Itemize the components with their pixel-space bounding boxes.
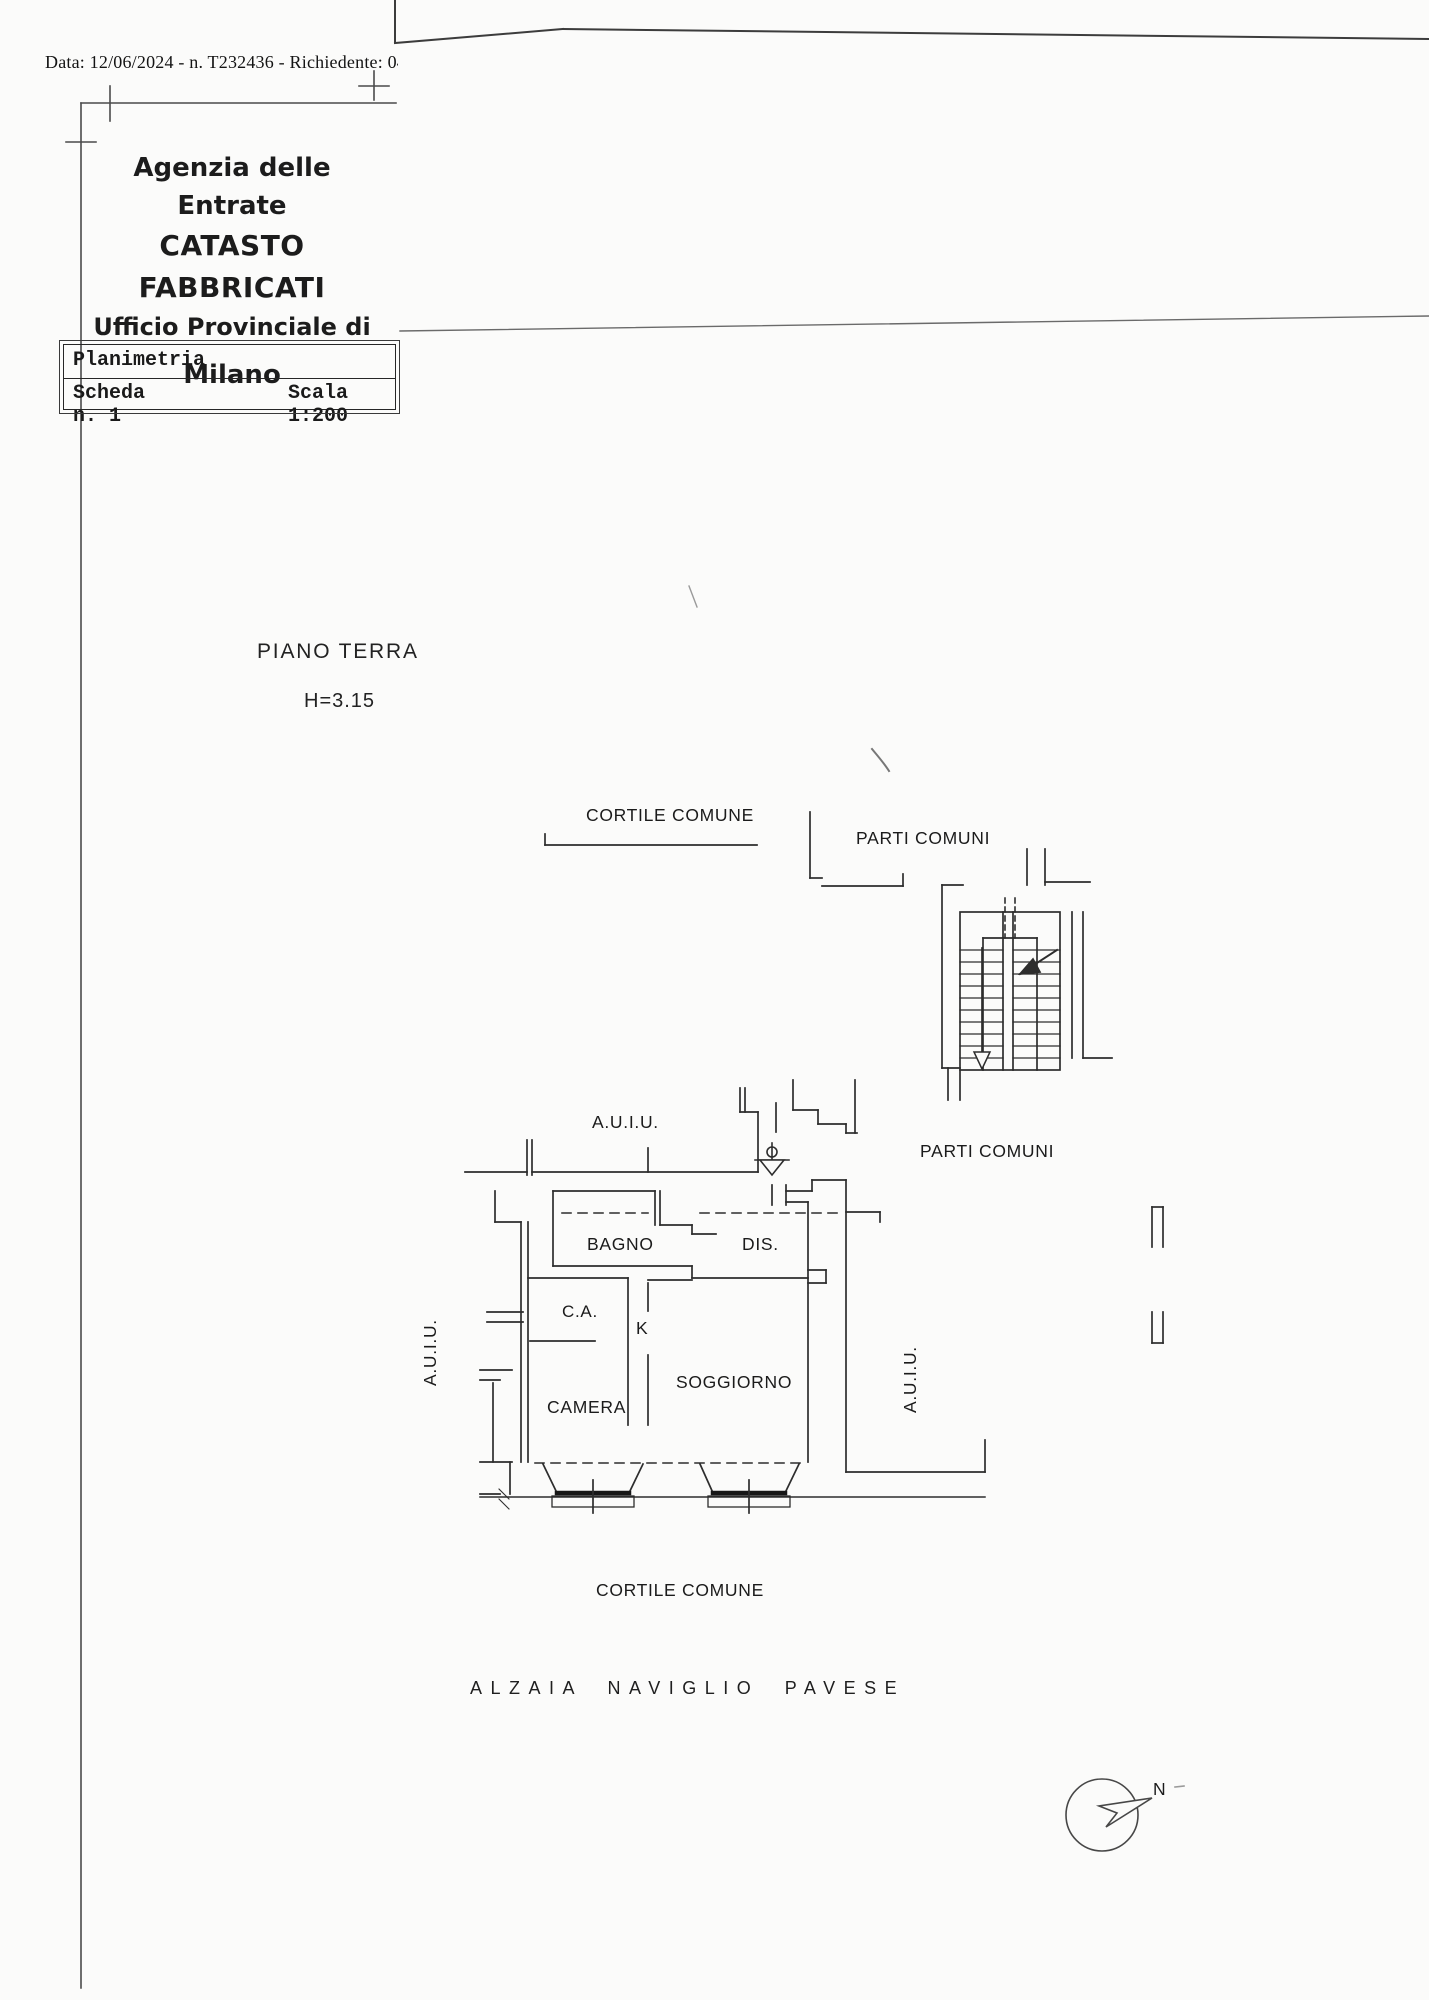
label-auiu-right: A.U.I.U. [900,1346,920,1413]
label-auiu-center: A.U.I.U. [592,1112,659,1132]
scan-date-line: Data: 12/06/2024 - n. T232436 - Richiede… [45,52,398,80]
scan-edge-artifacts [395,0,1429,771]
entry-door-icon [755,1143,789,1175]
street-name: ALZAIA NAVIGLIO PAVESE [470,1678,940,1699]
scale-value: Scala 1:200 [288,382,395,410]
label-cortile-comune-bottom: CORTILE COMUNE [596,1580,764,1600]
label-bagno: BAGNO [587,1234,654,1254]
compass-north-label: N [1153,1779,1166,1799]
staircase [960,912,1060,1070]
label-camera: CAMERA [547,1397,626,1417]
label-k: K [636,1318,648,1338]
provincial-office: Ufficio Provinciale di [90,309,374,345]
floor-title: PIANO TERRA [257,640,419,664]
label-soggiorno: SOGGIORNO [676,1372,792,1392]
label-cortile-comune-top: CORTILE COMUNE [586,805,754,825]
scheda-number: Scheda n. 1 [73,382,180,410]
planimetria-info-table: Planimetria Scheda n. 1 Scala 1:200 [63,344,396,410]
agency-name: Agenzia delle Entrate [90,150,374,225]
label-ca: C.A. [562,1302,598,1321]
catasto-title: CATASTO FABBRICATI [90,225,374,309]
label-auiu-left: A.U.I.U. [420,1319,440,1386]
label-parti-comuni-right: PARTI COMUNI [920,1141,1054,1161]
ceiling-height: H=3.15 [304,690,375,713]
stair-down-arrow-icon [974,948,990,1069]
label-dis: DIS. [742,1234,779,1254]
planimetria-label: Planimetria [64,345,395,379]
label-parti-comuni-top: PARTI COMUNI [856,828,990,848]
